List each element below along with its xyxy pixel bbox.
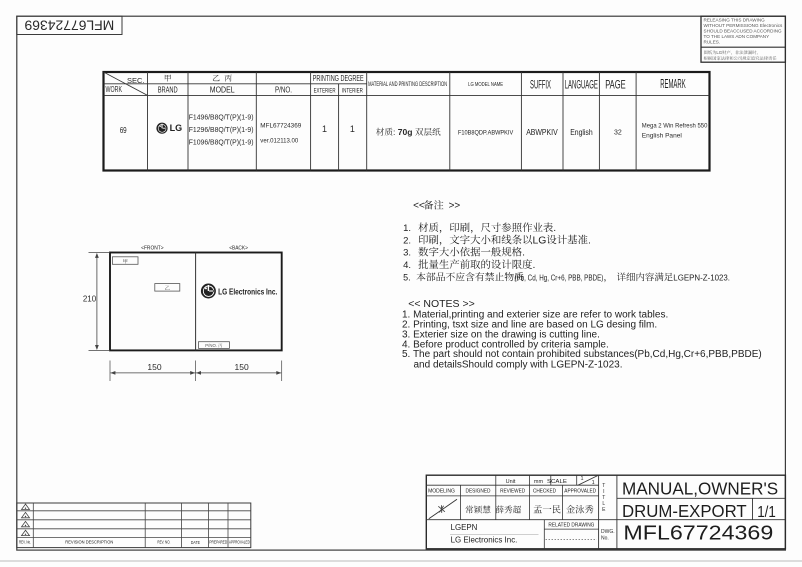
svg-text:<FRONT>: <FRONT> (141, 245, 164, 251)
svg-text:P/NO.: P/NO. (205, 343, 217, 348)
svg-text:5.: 5. (403, 272, 411, 282)
svg-text:<< NOTES >>: << NOTES >> (408, 298, 475, 310)
svg-text:RULES.: RULES. (704, 40, 721, 45)
svg-text:REV. No.: REV. No. (19, 540, 31, 545)
svg-text:English Panel: English Panel (642, 133, 683, 140)
svg-text:2.: 2. (403, 235, 411, 246)
svg-text:LG MODEL NAME: LG MODEL NAME (468, 82, 503, 88)
svg-text:F1296/B8Q/T(P)(1-9): F1296/B8Q/T(P)(1-9) (189, 127, 254, 134)
svg-text:PRINTING DEGREE: PRINTING DEGREE (313, 74, 364, 83)
svg-text:.: . (588, 235, 591, 246)
svg-text:(Pb, Cd, Hg, Cr+6, PBB, PBDE): (Pb, Cd, Hg, Cr+6, PBB, PBDE) (514, 273, 603, 282)
svg-text:English: English (570, 128, 593, 137)
svg-text:WITHOUT PERMISSIONG Electronic: WITHOUT PERMISSIONG Electronics (704, 23, 783, 28)
svg-text:1: 1 (322, 124, 327, 134)
svg-text:F1096/B8Q/T(P)(1-9): F1096/B8Q/T(P)(1-9) (189, 140, 254, 147)
svg-text:LGEPN: LGEPN (451, 523, 478, 532)
svg-text:70g: 70g (398, 127, 413, 137)
svg-text:EXTERIER: EXTERIER (314, 88, 336, 95)
svg-text:REMARK: REMARK (660, 77, 686, 91)
svg-text:CHECKED: CHECKED (533, 488, 556, 494)
svg-text:PAGE: PAGE (605, 77, 626, 91)
svg-text:.: . (553, 223, 556, 234)
svg-text:150: 150 (147, 362, 161, 372)
svg-text:69: 69 (120, 126, 127, 135)
svg-text:E: E (602, 507, 606, 513)
svg-text:1: 1 (580, 476, 583, 482)
svg-text:No.: No. (601, 536, 609, 542)
svg-text:SEC.: SEC. (127, 76, 145, 85)
svg-text:INTERIER: INTERIER (342, 88, 363, 95)
svg-text:SCALE: SCALE (547, 479, 567, 485)
svg-text:.: . (522, 248, 525, 259)
svg-text:MODEL: MODEL (210, 86, 235, 95)
svg-text:1: 1 (350, 124, 355, 134)
svg-text:MATERIAL AND PRINTING DESCRIPT: MATERIAL AND PRINTING DESCRIPTION (368, 82, 447, 88)
svg-text:RELATED DRAWING: RELATED DRAWING (548, 522, 594, 528)
svg-text:>>: >> (449, 201, 461, 212)
svg-text:mm: mm (534, 479, 544, 485)
svg-text:1.: 1. (403, 223, 411, 234)
svg-text:3.: 3. (403, 248, 411, 259)
svg-text:DATE: DATE (191, 540, 200, 545)
svg-text:MFL67724369: MFL67724369 (260, 122, 301, 129)
svg-text:<<: << (413, 201, 425, 212)
svg-text:MANUAL,OWNER'S: MANUAL,OWNER'S (622, 479, 778, 499)
svg-text:Unit: Unit (506, 479, 516, 485)
svg-text:DESIGNED: DESIGNED (466, 488, 491, 494)
svg-text:LGEPN-Z-1023.: LGEPN-Z-1023. (673, 272, 730, 282)
svg-text:APPROVALED: APPROVALED (564, 488, 596, 494)
svg-text:210: 210 (83, 295, 97, 304)
svg-text:ver.012113.00: ver.012113.00 (260, 137, 298, 144)
svg-text:DWG.: DWG. (601, 529, 615, 535)
svg-text:REVIEWED: REVIEWED (500, 488, 525, 494)
svg-text:F10B8QDP.ABWPKIV: F10B8QDP.ABWPKIV (458, 130, 514, 137)
svg-text:LG: LG (533, 235, 547, 246)
svg-text:P/NO.: P/NO. (275, 86, 292, 95)
svg-text:TO THE LAWS ADN COMPANY: TO THE LAWS ADN COMPANY (704, 34, 770, 39)
svg-text:32: 32 (614, 130, 622, 137)
svg-text:MODELING: MODELING (428, 488, 455, 494)
svg-text:PREPARED: PREPARED (209, 540, 227, 545)
svg-text:Mega 2 Win Refresh 550: Mega 2 Win Refresh 550 (642, 123, 708, 130)
svg-text:RELEASING THIS DRAWING: RELEASING THIS DRAWING (704, 18, 766, 23)
svg-text::: : (393, 127, 395, 137)
svg-text:LANGUAGE: LANGUAGE (565, 78, 598, 92)
svg-text:DRUM-EXPORT: DRUM-EXPORT (622, 501, 747, 521)
svg-text:MFL67724369: MFL67724369 (623, 522, 773, 544)
svg-text:F1496/B8Q/T(P)(1-9): F1496/B8Q/T(P)(1-9) (189, 114, 254, 121)
svg-text:LG Electronics Inc.: LG Electronics Inc. (218, 287, 277, 296)
svg-text:MFL67724369: MFL67724369 (24, 18, 114, 34)
svg-text:ABWPKIV: ABWPKIV (526, 128, 558, 137)
svg-text:<BACK>: <BACK> (229, 245, 248, 251)
svg-text:150: 150 (235, 362, 249, 372)
svg-text:4.: 4. (403, 260, 411, 271)
svg-text:WORK: WORK (106, 85, 123, 94)
svg-text:APPROVALED: APPROVALED (229, 540, 250, 545)
svg-text:and detailsShould comply with: and detailsShould comply with LGEPN-Z-10… (414, 360, 623, 371)
svg-text:1/1: 1/1 (757, 504, 776, 521)
svg-text:REVISION DESCRIPTION: REVISION DESCRIPTION (65, 540, 113, 545)
svg-text:LG Electronics Inc.: LG Electronics Inc. (451, 535, 518, 544)
svg-text:BRAND: BRAND (158, 86, 178, 95)
svg-text:SUFFIX: SUFFIX (530, 78, 551, 92)
svg-text:REV. NO.: REV. NO. (157, 540, 170, 545)
svg-text:LG: LG (716, 50, 722, 55)
svg-text:SHOULD BEACCUSED ACCORDING: SHOULD BEACCUSED ACCORDING (704, 29, 783, 34)
svg-text:5. The part should not contain: 5. The part should not contain prohibite… (402, 349, 762, 360)
svg-text:LG: LG (170, 123, 183, 133)
svg-text:.: . (533, 260, 536, 271)
svg-text:1: 1 (592, 480, 595, 486)
